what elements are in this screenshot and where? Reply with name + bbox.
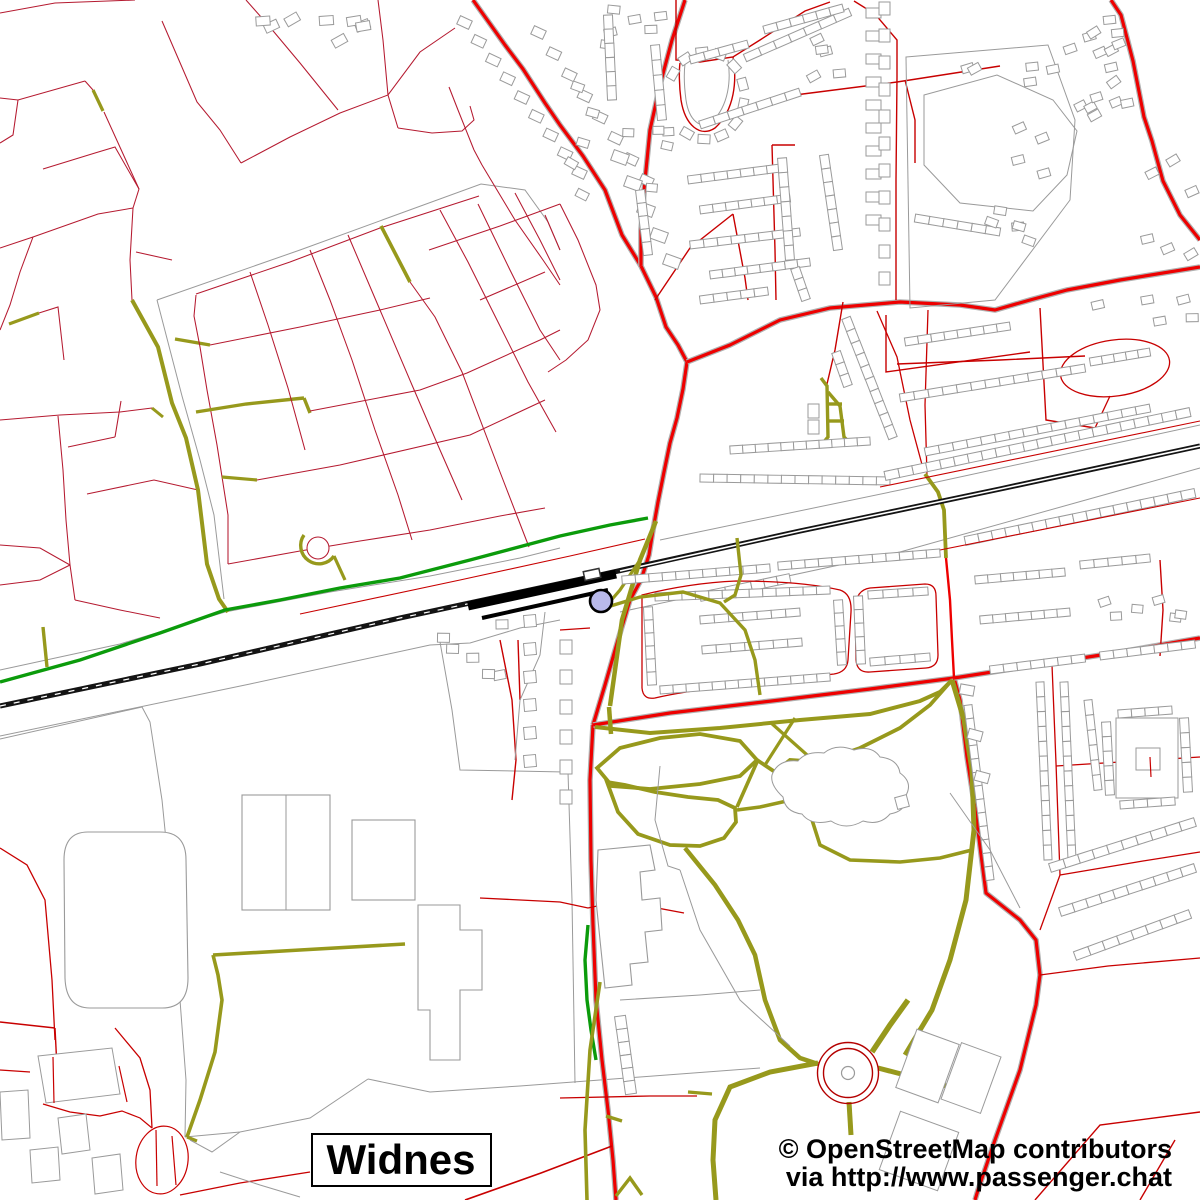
svg-text:Widnes: Widnes <box>327 1136 476 1183</box>
svg-text:© OpenStreetMap contributors: © OpenStreetMap contributors <box>779 1134 1172 1164</box>
svg-text:via http://www.passenger.chat: via http://www.passenger.chat <box>786 1162 1172 1192</box>
